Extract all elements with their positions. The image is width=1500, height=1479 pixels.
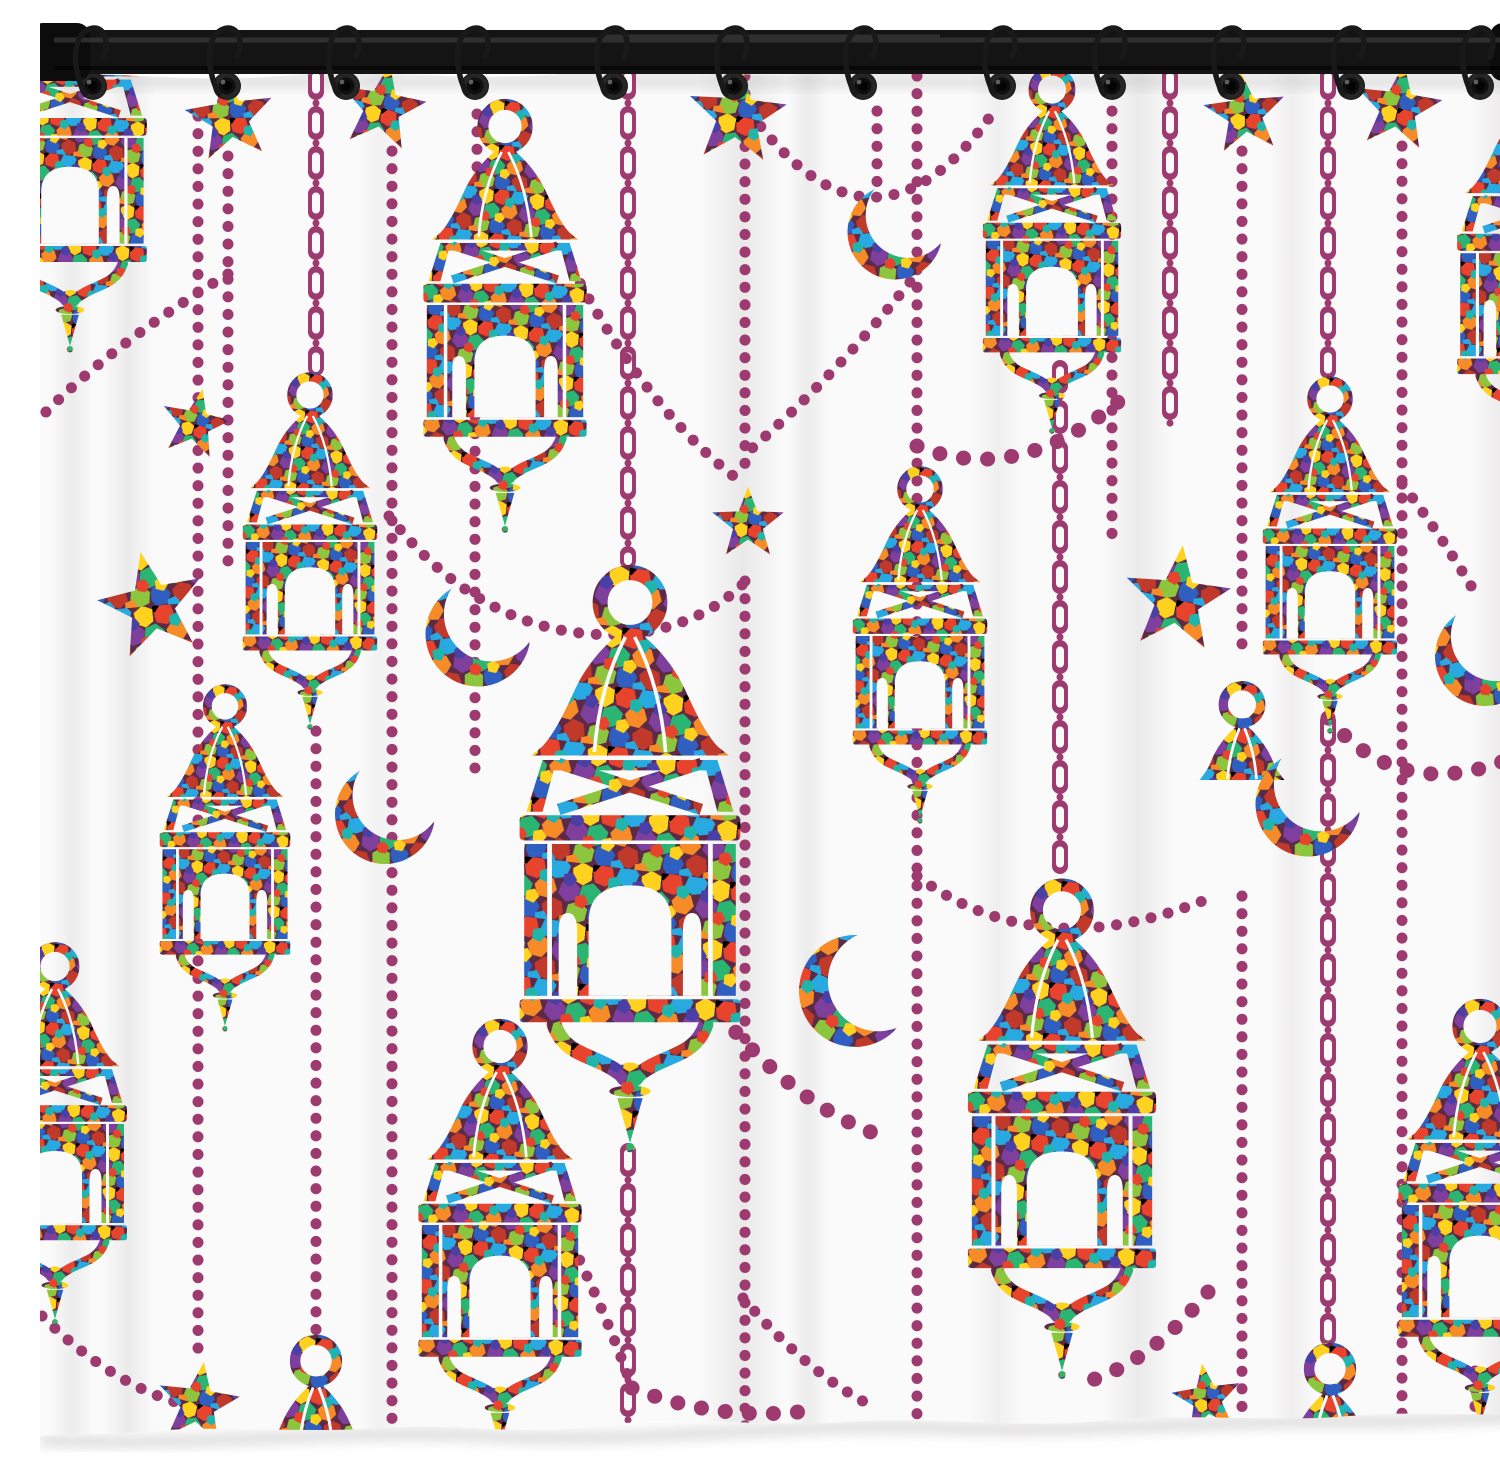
curtain-rod <box>40 23 1500 81</box>
shower-curtain-product-photo <box>40 16 1500 1463</box>
scene-svg <box>40 16 1500 1463</box>
crescent-moon-ornament <box>831 168 959 296</box>
